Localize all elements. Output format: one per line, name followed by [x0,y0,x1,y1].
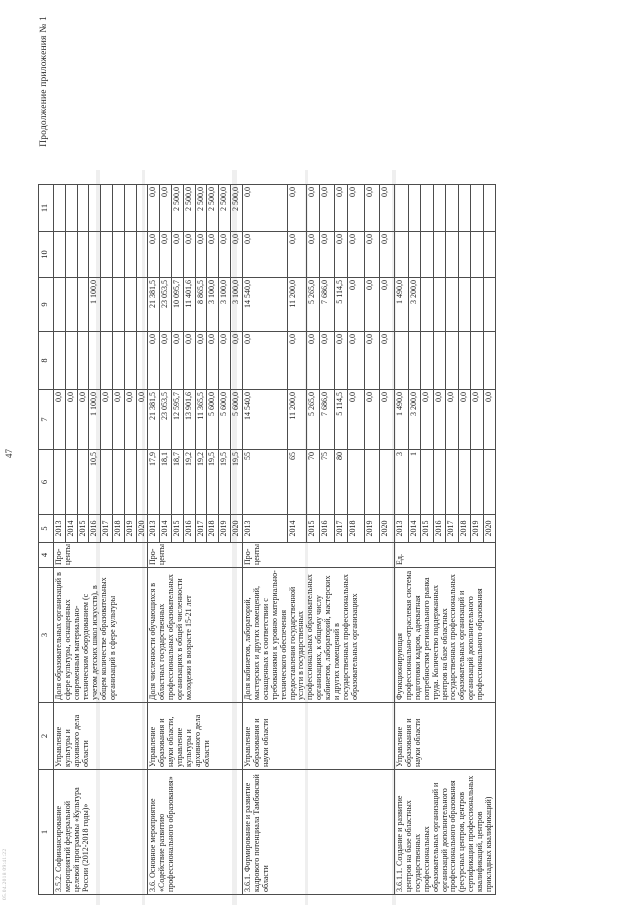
local-budget-cell [77,232,89,278]
federal-budget-cell: 0,0 [242,332,287,390]
total-funding-cell: 0,0 [347,390,364,450]
extrabudget-cell [458,185,470,232]
total-funding-cell: 1 100,0 [89,390,101,450]
indicator-value-cell [136,450,148,515]
indicator-value-cell: 19,5 [207,450,219,515]
extrabudget-cell [471,185,483,232]
indicator-value-cell: 18,1 [160,450,172,515]
extrabudget-cell: 2 500,0 [230,185,242,232]
local-budget-cell [394,232,408,278]
regional-budget-cell: 3 100,0 [219,278,231,332]
measure-name-cell: 3.6.1.1. Создание и развитие центров на … [394,770,495,895]
regional-budget-cell: 3 100,0 [230,278,242,332]
indicator-value-cell [347,450,364,515]
regional-budget-cell: 0,0 [347,278,364,332]
extrabudget-cell [394,185,408,232]
extrabudget-cell [433,185,445,232]
table-row: 3.5.2. Софинансирование мероприятий феде… [54,185,66,895]
year-cell: 2018 [458,515,470,543]
federal-budget-cell: 0,0 [334,332,347,390]
local-budget-cell [112,232,124,278]
column-number: 4 [39,543,54,568]
federal-budget-cell: 0,0 [148,332,160,390]
extrabudget-cell: 0,0 [148,185,160,232]
indicator-value-cell: 55 [242,450,287,515]
indicator-value-cell: 10,5 [89,450,101,515]
federal-budget-cell [458,332,470,390]
print-timestamp: 05.04.2018 09:41:22 [2,849,8,900]
measure-name-cell: 3.6. Основное мероприятие «Содействие ра… [148,770,242,895]
regional-budget-cell: 1 490,0 [394,278,408,332]
indicator-name-cell: Доля кабинетов, лабораторий, мастерских … [242,568,394,703]
year-cell: 2015 [306,515,319,543]
local-budget-cell: 0,0 [287,232,306,278]
extrabudget-cell [112,185,124,232]
local-budget-cell [136,232,148,278]
total-funding-cell: 0,0 [364,390,379,450]
year-cell: 2019 [124,515,136,543]
federal-budget-cell: 0,0 [183,332,195,390]
federal-budget-cell [89,332,101,390]
federal-budget-cell: 0,0 [347,332,364,390]
indicator-value-cell: 19,5 [219,450,231,515]
regional-budget-cell [101,278,113,332]
federal-budget-cell: 0,0 [160,332,172,390]
regional-budget-cell: 3 200,0 [408,278,421,332]
year-cell: 2019 [364,515,379,543]
year-cell: 2017 [446,515,458,543]
local-budget-cell [101,232,113,278]
total-funding-cell: 0,0 [421,390,433,450]
year-cell: 2020 [379,515,394,543]
regional-budget-cell: 1 100,0 [89,278,101,332]
measure-name-cell: 3.5.2. Софинансирование мероприятий феде… [54,770,148,895]
total-funding-cell: 11 200,0 [287,390,306,450]
column-number: 3 [39,568,54,703]
federal-budget-cell [483,332,496,390]
total-funding-cell: 5 265,0 [306,390,319,450]
regional-budget-cell: 3 100,0 [207,278,219,332]
total-funding-cell: 0,0 [379,390,394,450]
year-cell: 2020 [230,515,242,543]
year-cell: 2013 [54,515,66,543]
local-budget-cell [446,232,458,278]
column-number: 1 [39,770,54,895]
federal-budget-cell [112,332,124,390]
local-budget-cell [421,232,433,278]
extrabudget-cell: 2 500,0 [183,185,195,232]
year-cell: 2015 [77,515,89,543]
year-cell: 2015 [171,515,183,543]
local-budget-cell: 0,0 [364,232,379,278]
extrabudget-cell: 2 500,0 [171,185,183,232]
local-budget-cell: 0,0 [347,232,364,278]
total-funding-cell: 21 381,5 [148,390,160,450]
column-number: 9 [39,278,54,332]
year-cell: 2016 [319,515,334,543]
total-funding-cell: 0,0 [112,390,124,450]
unit-cell: Про-центы [242,543,394,568]
total-funding-cell: 5 114,5 [334,390,347,450]
indicator-value-cell [65,450,77,515]
federal-budget-cell [394,332,408,390]
federal-budget-cell [54,332,66,390]
regional-budget-cell [433,278,445,332]
column-number: 2 [39,703,54,770]
local-budget-cell [65,232,77,278]
total-funding-cell: 0,0 [136,390,148,450]
extrabudget-cell [54,185,66,232]
regional-budget-cell: 7 686,0 [319,278,334,332]
extrabudget-cell [483,185,496,232]
extrabudget-cell [65,185,77,232]
regional-budget-cell [54,278,66,332]
year-cell: 2013 [242,515,287,543]
total-funding-cell: 1 490,0 [394,390,408,450]
year-cell: 2013 [394,515,408,543]
total-funding-cell: 0,0 [433,390,445,450]
local-budget-cell [408,232,421,278]
extrabudget-cell [101,185,113,232]
indicator-value-cell: 18,7 [171,450,183,515]
regional-budget-cell [136,278,148,332]
local-budget-cell: 0,0 [306,232,319,278]
appendix-continuation-note: Продолжение приложения № 1 [39,16,49,147]
indicator-value-cell [364,450,379,515]
year-cell: 2017 [334,515,347,543]
total-funding-cell: 0,0 [471,390,483,450]
federal-budget-cell [124,332,136,390]
regional-budget-cell: 0,0 [379,278,394,332]
total-funding-cell: 0,0 [77,390,89,450]
local-budget-cell: 0,0 [379,232,394,278]
extrabudget-cell [124,185,136,232]
indicator-value-cell: 70 [306,450,319,515]
total-funding-cell: 13 901,6 [183,390,195,450]
indicator-value-cell: 19,2 [183,450,195,515]
extrabudget-cell: 0,0 [347,185,364,232]
year-cell: 2014 [287,515,306,543]
regional-budget-cell [458,278,470,332]
year-cell: 2016 [433,515,445,543]
year-cell: 2018 [112,515,124,543]
regional-budget-cell: 8 865,5 [195,278,207,332]
regional-budget-cell: 21 381,5 [148,278,160,332]
scanned-document-page: 05.04.2018 09:41:22 47 Продолжение прило… [0,0,640,905]
extrabudget-cell [89,185,101,232]
year-cell: 2015 [421,515,433,543]
regional-budget-cell [471,278,483,332]
year-cell: 2016 [89,515,101,543]
indicator-value-cell: 65 [287,450,306,515]
column-number: 8 [39,332,54,390]
regional-budget-cell [483,278,496,332]
local-budget-cell [471,232,483,278]
extrabudget-cell: 0,0 [242,185,287,232]
extrabudget-cell: 0,0 [160,185,172,232]
indicator-value-cell: 3 [394,450,408,515]
table-row: 3.6.1. Формирование и развитие кадрового… [242,185,287,895]
federal-budget-cell [136,332,148,390]
total-funding-cell: 14 540,0 [242,390,287,450]
column-number: 11 [39,185,54,232]
regional-budget-cell [77,278,89,332]
indicator-value-cell: 17,9 [148,450,160,515]
column-number: 10 [39,232,54,278]
total-funding-cell: 11 365,5 [195,390,207,450]
local-budget-cell: 0,0 [207,232,219,278]
landscape-sheet: 05.04.2018 09:41:22 47 Продолжение прило… [0,0,640,905]
year-cell: 2019 [471,515,483,543]
total-funding-cell: 0,0 [54,390,66,450]
indicator-name-cell: Доля образовательных организаций в сфере… [54,568,148,703]
measure-name-cell: 3.6.1. Формирование и развитие кадрового… [242,770,394,895]
year-cell: 2017 [195,515,207,543]
federal-budget-cell: 0,0 [319,332,334,390]
regional-budget-cell [124,278,136,332]
indicator-value-cell [379,450,394,515]
federal-budget-cell: 0,0 [306,332,319,390]
extrabudget-cell [408,185,421,232]
regional-budget-cell: 11 401,6 [183,278,195,332]
indicator-value-cell: 19,5 [230,450,242,515]
regional-budget-cell: 5 265,0 [306,278,319,332]
indicator-value-cell [446,450,458,515]
federal-budget-cell [101,332,113,390]
year-cell: 2013 [148,515,160,543]
total-funding-cell: 0,0 [458,390,470,450]
regional-budget-cell: 14 540,0 [242,278,287,332]
local-budget-cell: 0,0 [242,232,287,278]
year-cell: 2017 [101,515,113,543]
federal-budget-cell [65,332,77,390]
extrabudget-cell [446,185,458,232]
federal-budget-cell: 0,0 [219,332,231,390]
extrabudget-cell: 0,0 [379,185,394,232]
local-budget-cell: 0,0 [230,232,242,278]
federal-budget-cell [471,332,483,390]
total-funding-cell: 23 053,5 [160,390,172,450]
total-funding-cell: 5 600,0 [230,390,242,450]
extrabudget-cell: 0,0 [287,185,306,232]
local-budget-cell [458,232,470,278]
unit-cell: Про-центы [148,543,242,568]
year-cell: 2016 [183,515,195,543]
year-cell: 2018 [347,515,364,543]
local-budget-cell [54,232,66,278]
total-funding-cell: 0,0 [483,390,496,450]
extrabudget-cell: 0,0 [334,185,347,232]
federal-budget-cell: 0,0 [287,332,306,390]
year-cell: 2020 [136,515,148,543]
unit-cell: Про-центы [54,543,148,568]
regional-budget-cell [65,278,77,332]
column-number: 7 [39,390,54,450]
program-measures-table: 12345678910113.5.2. Софинансирование мер… [38,184,496,895]
column-number: 6 [39,450,54,515]
total-funding-cell: 0,0 [65,390,77,450]
year-cell: 2014 [408,515,421,543]
federal-budget-cell [408,332,421,390]
federal-budget-cell: 0,0 [230,332,242,390]
indicator-value-cell [433,450,445,515]
total-funding-cell: 5 600,0 [207,390,219,450]
indicator-value-cell [458,450,470,515]
indicator-value-cell: 1 [408,450,421,515]
regional-budget-cell: 11 200,0 [287,278,306,332]
indicator-value-cell [54,450,66,515]
executor-cell: Управление образования и науки области [242,703,394,770]
local-budget-cell: 0,0 [183,232,195,278]
table-row: 3.6.1.1. Создание и развитие центров на … [394,185,408,895]
indicator-value-cell [112,450,124,515]
local-budget-cell: 0,0 [148,232,160,278]
page-number: 47 [4,449,14,458]
year-cell: 2018 [207,515,219,543]
year-cell: 2020 [483,515,496,543]
indicator-value-cell [471,450,483,515]
local-budget-cell [483,232,496,278]
executor-cell: Управление образования и науки области [394,703,495,770]
extrabudget-cell [421,185,433,232]
column-number: 5 [39,515,54,543]
federal-budget-cell [77,332,89,390]
federal-budget-cell [421,332,433,390]
local-budget-cell [433,232,445,278]
local-budget-cell [124,232,136,278]
federal-budget-cell: 0,0 [379,332,394,390]
regional-budget-cell: 23 053,5 [160,278,172,332]
extrabudget-cell: 2 500,0 [195,185,207,232]
indicator-value-cell [77,450,89,515]
federal-budget-cell: 0,0 [364,332,379,390]
total-funding-cell: 0,0 [101,390,113,450]
local-budget-cell: 0,0 [195,232,207,278]
total-funding-cell: 0,0 [124,390,136,450]
local-budget-cell: 0,0 [319,232,334,278]
local-budget-cell: 0,0 [334,232,347,278]
regional-budget-cell [446,278,458,332]
regional-budget-cell [112,278,124,332]
indicator-value-cell [483,450,496,515]
year-cell: 2014 [160,515,172,543]
total-funding-cell: 5 600,0 [219,390,231,450]
extrabudget-cell: 0,0 [364,185,379,232]
extrabudget-cell [136,185,148,232]
unit-cell: Ед. [394,543,495,568]
extrabudget-cell: 0,0 [306,185,319,232]
federal-budget-cell: 0,0 [195,332,207,390]
local-budget-cell [89,232,101,278]
local-budget-cell: 0,0 [160,232,172,278]
regional-budget-cell: 10 095,7 [171,278,183,332]
indicator-value-cell: 80 [334,450,347,515]
federal-budget-cell: 0,0 [171,332,183,390]
local-budget-cell: 0,0 [219,232,231,278]
total-funding-cell: 3 200,0 [408,390,421,450]
extrabudget-cell: 2 500,0 [219,185,231,232]
year-cell: 2019 [219,515,231,543]
extrabudget-cell [77,185,89,232]
extrabudget-cell: 0,0 [319,185,334,232]
regional-budget-cell: 0,0 [364,278,379,332]
federal-budget-cell [446,332,458,390]
federal-budget-cell: 0,0 [207,332,219,390]
indicator-value-cell [124,450,136,515]
indicator-value-cell [421,450,433,515]
indicator-value-cell: 19,2 [195,450,207,515]
total-funding-cell: 12 595,7 [171,390,183,450]
executor-cell: Управление образования и науки области, … [148,703,242,770]
local-budget-cell: 0,0 [171,232,183,278]
total-funding-cell: 0,0 [446,390,458,450]
indicator-name-cell: Доля численности обучающихся в областных… [148,568,242,703]
indicator-value-cell: 75 [319,450,334,515]
extrabudget-cell: 2 500,0 [207,185,219,232]
total-funding-cell: 7 686,0 [319,390,334,450]
regional-budget-cell: 5 114,5 [334,278,347,332]
table-row: 3.6. Основное мероприятие «Содействие ра… [148,185,160,895]
year-cell: 2014 [65,515,77,543]
executor-cell: Управление культуры и архивного дела обл… [54,703,148,770]
indicator-name-cell: Функционирующая профессионально-отраслев… [394,568,495,703]
federal-budget-cell [433,332,445,390]
regional-budget-cell [421,278,433,332]
indicator-value-cell [101,450,113,515]
